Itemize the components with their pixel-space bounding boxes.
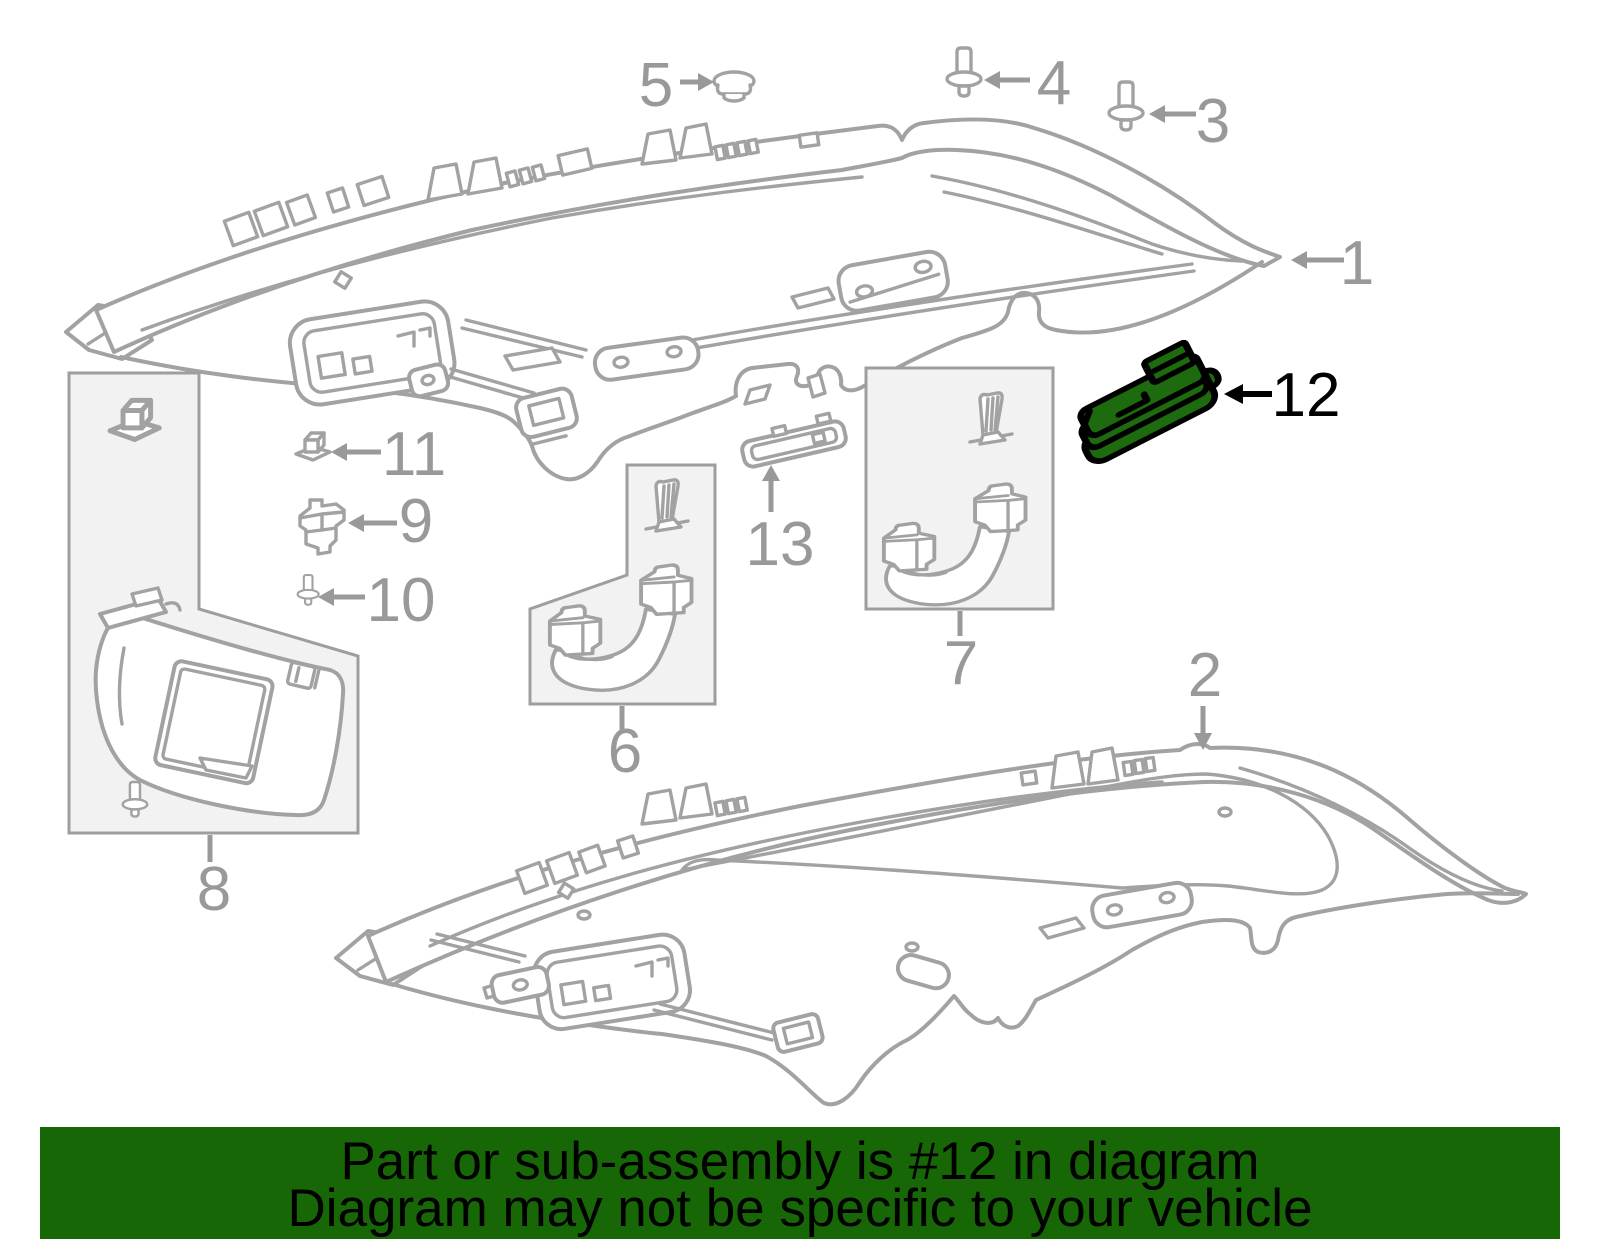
svg-text:12: 12 [1272, 361, 1341, 430]
svg-text:2: 2 [1188, 641, 1222, 710]
svg-text:10: 10 [367, 566, 436, 635]
svg-text:4: 4 [1037, 49, 1071, 118]
svg-text:Diagram may not be specific to: Diagram may not be specific to your vehi… [287, 1179, 1312, 1238]
svg-text:5: 5 [639, 51, 673, 120]
svg-text:11: 11 [382, 420, 446, 489]
svg-text:6: 6 [608, 717, 642, 786]
svg-text:13: 13 [746, 510, 815, 579]
svg-text:7: 7 [944, 629, 978, 698]
svg-text:8: 8 [197, 855, 231, 924]
svg-text:9: 9 [399, 487, 433, 556]
svg-text:3: 3 [1196, 87, 1230, 156]
svg-text:1: 1 [1340, 229, 1374, 298]
